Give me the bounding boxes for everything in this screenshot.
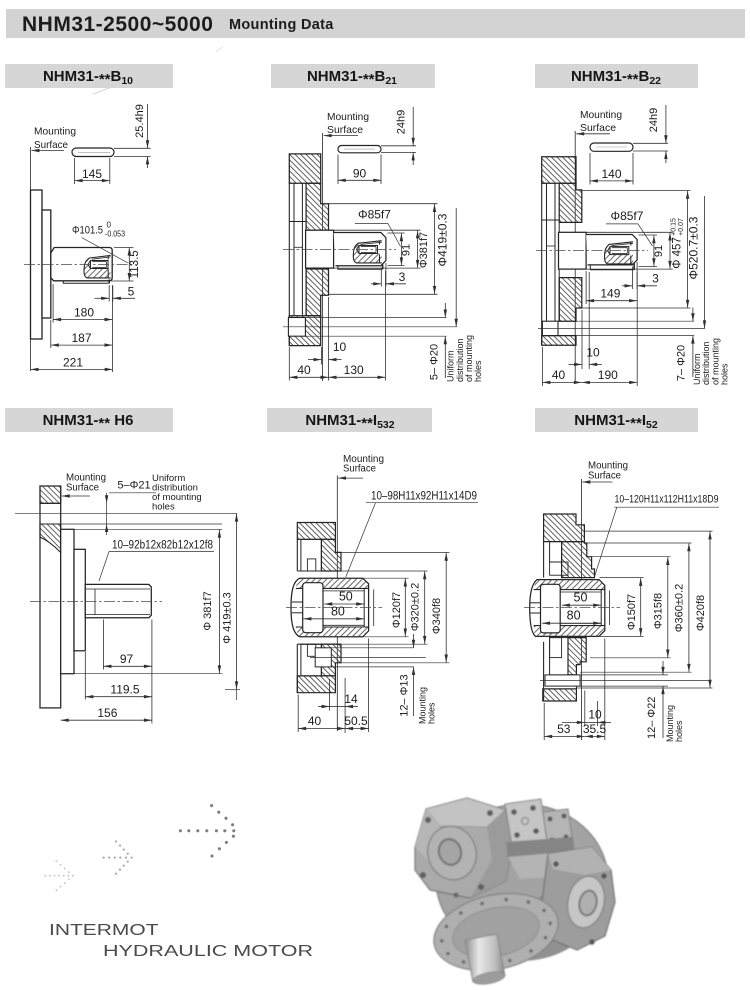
svg-text:40: 40 <box>308 714 322 728</box>
svg-text:91: 91 <box>401 244 413 256</box>
svg-text:NHM31-2500~5000: NHM31-2500~5000 <box>22 13 213 36</box>
svg-text:10–92b12x82b12x12f8: 10–92b12x82b12x12f8 <box>112 540 213 552</box>
svg-text:50: 50 <box>339 590 353 604</box>
svg-text:Φ520.7±0.3: Φ520.7±0.3 <box>687 216 701 279</box>
svg-text:Φ381f7: Φ381f7 <box>418 232 430 268</box>
svg-text:24h9: 24h9 <box>396 110 408 134</box>
svg-text:Mounting: Mounting <box>327 111 369 123</box>
svg-text:Φ85f7: Φ85f7 <box>611 209 644 223</box>
svg-text:156: 156 <box>97 706 117 720</box>
svg-text:149: 149 <box>600 287 620 301</box>
svg-text:3: 3 <box>399 270 406 284</box>
svg-text:Φ 419±0.3: Φ 419±0.3 <box>222 592 234 644</box>
svg-text:Φ420f8: Φ420f8 <box>695 595 707 631</box>
svg-text:35.5: 35.5 <box>583 722 607 736</box>
svg-text:Surface: Surface <box>588 471 621 482</box>
svg-text:113.5: 113.5 <box>129 250 141 278</box>
svg-text:97: 97 <box>120 652 134 666</box>
svg-text:53: 53 <box>557 722 571 736</box>
svg-text:180: 180 <box>74 306 94 320</box>
svg-text:145: 145 <box>82 167 102 181</box>
svg-text:Φ150f7: Φ150f7 <box>626 594 638 630</box>
svg-text:Φ320±0.2: Φ320±0.2 <box>409 583 421 631</box>
svg-text:80: 80 <box>331 604 345 618</box>
svg-text:25.4h9: 25.4h9 <box>134 104 146 138</box>
svg-text:HYDRAULIC MOTOR: HYDRAULIC MOTOR <box>103 943 313 960</box>
svg-text:holes: holes <box>152 502 175 513</box>
svg-text:90: 90 <box>353 167 367 181</box>
svg-text:91: 91 <box>653 245 665 257</box>
svg-text:14: 14 <box>344 692 358 706</box>
svg-text:140: 140 <box>601 167 621 181</box>
svg-text:Surface: Surface <box>580 122 616 134</box>
svg-text:Φ85f7: Φ85f7 <box>358 208 391 222</box>
svg-text:5: 5 <box>128 285 135 299</box>
svg-text:Mounting: Mounting <box>34 126 76 138</box>
svg-text:holes: holes <box>720 363 730 385</box>
svg-text:5–Φ21: 5–Φ21 <box>117 480 150 492</box>
svg-text:5– Φ20: 5– Φ20 <box>429 344 441 380</box>
svg-text:Φ120f7: Φ120f7 <box>391 592 403 628</box>
svg-text:Φ419±0.3: Φ419±0.3 <box>436 213 450 266</box>
svg-text:3: 3 <box>652 272 659 286</box>
svg-text:10: 10 <box>586 346 600 360</box>
svg-text:187: 187 <box>71 331 91 345</box>
svg-text:Surface: Surface <box>327 124 363 136</box>
svg-text:80: 80 <box>567 609 581 623</box>
svg-text:10–120H11x112H11x18D9: 10–120H11x112H11x18D9 <box>615 494 719 506</box>
svg-text:50: 50 <box>574 591 588 605</box>
svg-text:24h9: 24h9 <box>648 108 660 132</box>
svg-text:holes: holes <box>473 360 483 382</box>
svg-text:Mounting Data: Mounting Data <box>229 17 334 33</box>
svg-text:+0.15: +0.15 <box>671 218 678 236</box>
svg-text:Φ315f8: Φ315f8 <box>653 593 665 629</box>
svg-text:INTERMOT: INTERMOT <box>49 922 159 939</box>
svg-text:Φ101.5: Φ101.5 <box>72 225 103 237</box>
svg-text:+0.07: +0.07 <box>678 218 685 236</box>
svg-text:12– Φ22: 12– Φ22 <box>646 697 658 739</box>
svg-text:Φ360±0.2: Φ360±0.2 <box>674 584 686 632</box>
svg-text:10: 10 <box>333 340 347 354</box>
svg-text:Surface: Surface <box>66 483 99 494</box>
svg-text:Mounting: Mounting <box>580 109 622 121</box>
svg-text:130: 130 <box>344 363 364 377</box>
svg-text:190: 190 <box>598 368 618 382</box>
svg-text:221: 221 <box>63 355 83 369</box>
svg-text:10–98H11x92H11x14D9: 10–98H11x92H11x14D9 <box>371 491 477 503</box>
svg-text:0: 0 <box>107 221 112 230</box>
svg-text:holes: holes <box>427 702 437 724</box>
svg-text:Φ340f8: Φ340f8 <box>431 598 443 634</box>
svg-text:40: 40 <box>297 363 311 377</box>
svg-text:Φ 457: Φ 457 <box>672 237 684 269</box>
svg-text:Surface: Surface <box>343 464 376 475</box>
svg-text:-0.053: -0.053 <box>105 230 125 239</box>
svg-text:Φ 381f7: Φ 381f7 <box>202 591 214 630</box>
svg-text:holes: holes <box>674 720 684 742</box>
svg-text:7– Φ20: 7– Φ20 <box>676 345 688 381</box>
svg-text:12– Φ13: 12– Φ13 <box>399 674 411 716</box>
svg-text:119.5: 119.5 <box>110 683 139 697</box>
svg-text:10: 10 <box>588 708 602 722</box>
svg-text:50.5: 50.5 <box>344 714 368 728</box>
svg-text:40: 40 <box>552 368 566 382</box>
